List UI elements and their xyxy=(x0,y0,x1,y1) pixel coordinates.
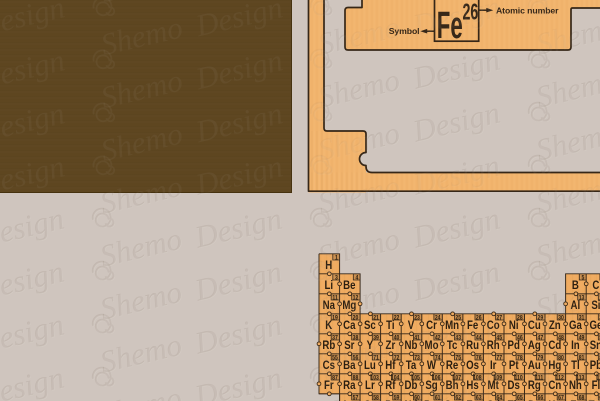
svg-text:Design: Design xyxy=(0,360,67,401)
svg-text:Design: Design xyxy=(409,360,503,401)
svg-text:Design: Design xyxy=(191,201,285,255)
svg-text:Design: Design xyxy=(0,148,67,202)
svg-text:Design: Design xyxy=(191,148,285,202)
svg-text:Shemo: Shemo xyxy=(533,62,600,115)
svg-text:Design: Design xyxy=(409,0,503,43)
svg-text:Design: Design xyxy=(0,201,67,255)
svg-text:Design: Design xyxy=(191,254,285,308)
svg-text:Design: Design xyxy=(191,95,285,149)
svg-text:Shemo: Shemo xyxy=(533,221,600,274)
svg-text:Design: Design xyxy=(409,201,503,255)
svg-text:Design: Design xyxy=(409,95,503,149)
svg-text:Design: Design xyxy=(191,42,285,96)
svg-text:Design: Design xyxy=(409,254,503,308)
svg-text:Design: Design xyxy=(0,307,67,361)
svg-text:Shemo: Shemo xyxy=(533,380,600,401)
svg-text:Shemo: Shemo xyxy=(533,327,600,380)
svg-text:Design: Design xyxy=(0,42,67,96)
svg-text:Design: Design xyxy=(409,42,503,96)
svg-text:Shemo: Shemo xyxy=(533,115,600,168)
svg-text:Design: Design xyxy=(191,307,285,361)
svg-text:Design: Design xyxy=(0,254,67,308)
svg-text:Design: Design xyxy=(191,0,285,43)
svg-text:Shemo: Shemo xyxy=(533,168,600,221)
svg-text:Design: Design xyxy=(409,148,503,202)
svg-text:Design: Design xyxy=(409,307,503,361)
svg-text:Design: Design xyxy=(191,360,285,401)
svg-text:Shemo: Shemo xyxy=(533,274,600,327)
svg-text:Shemo: Shemo xyxy=(533,9,600,62)
svg-text:Design: Design xyxy=(0,95,67,149)
